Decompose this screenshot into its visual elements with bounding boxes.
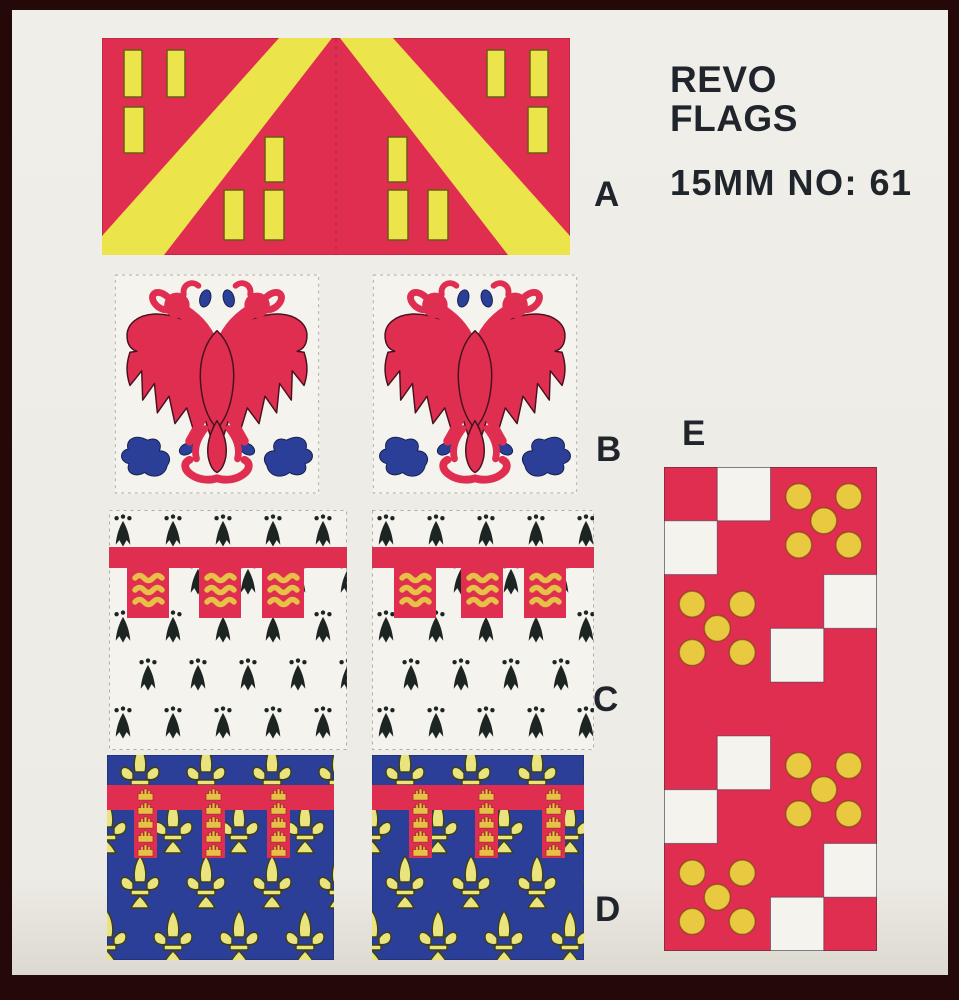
flag-a-graphic [102, 38, 570, 255]
flag-d-right-svg [372, 755, 584, 960]
flag-e-svg [664, 467, 877, 951]
flag-c-right-svg [372, 510, 594, 750]
flag-d-right-graphic [372, 755, 584, 960]
ermine-field [372, 510, 594, 750]
flag-c-label: C [593, 681, 618, 719]
label-band [372, 547, 594, 568]
flag-a-svg [102, 38, 570, 255]
flag-d-label: D [595, 891, 620, 929]
scale-and-number: 15MM NO: 61 [670, 162, 913, 204]
ermine-field [109, 510, 347, 750]
product-title: REVO FLAGS 15MM NO: 61 [670, 60, 913, 204]
label-pendants [394, 568, 566, 618]
paper-background: REVO FLAGS 15MM NO: 61 [12, 10, 948, 975]
flag-e-graphic [664, 467, 877, 951]
flag-b-label: B [596, 431, 621, 469]
flag-c-left-svg [109, 510, 347, 750]
flag-e-label: E [682, 415, 705, 453]
flag-c-left-graphic [109, 510, 347, 750]
flag-b-right-graphic [368, 274, 582, 494]
flag-b-left-svg [110, 274, 324, 494]
flag-c-right-graphic [372, 510, 594, 750]
flag-b-left-graphic [110, 274, 324, 494]
label-band [109, 547, 347, 568]
flag-a-label: A [594, 176, 619, 214]
flag-d-left-svg [107, 755, 334, 960]
scanned-flag-sheet: REVO FLAGS 15MM NO: 61 [0, 0, 959, 1000]
brand-line-1: REVO [670, 60, 913, 99]
brand-line-2: FLAGS [670, 99, 913, 138]
flag-b-right-svg [368, 274, 582, 494]
label-pendants [127, 568, 304, 618]
flag-d-left-graphic [107, 755, 334, 960]
